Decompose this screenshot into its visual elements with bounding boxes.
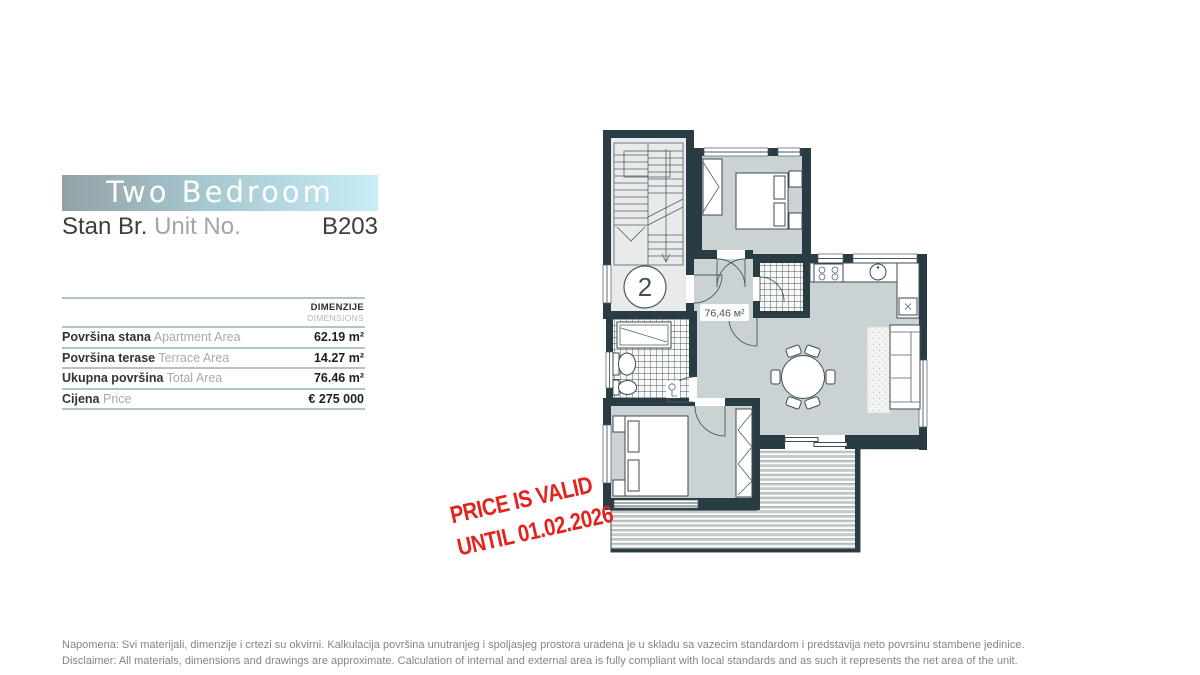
floorplan-brochure-page: Two Bedroom Stan Br. Unit No. B203 DIMEN… [0, 0, 1200, 675]
appliance [899, 298, 917, 315]
row-label-primary: Ukupna površina [62, 371, 163, 385]
row-label: Površina stana Apartment Area [62, 330, 241, 344]
table-row-terrace-area: Površina terase Terrace Area 14.27 m² [62, 349, 365, 370]
floor-number: 2 [638, 272, 652, 302]
row-label-primary: Cijena [62, 392, 100, 406]
row-label-primary: Površina terase [62, 351, 155, 365]
nightstand [613, 480, 625, 496]
disclaimer-line-1: Napomena: Svi materijali, dimenzije i cr… [62, 637, 1152, 653]
bathtub [617, 322, 671, 348]
floor-number-badge: 2 [624, 266, 666, 308]
nightstand [613, 416, 625, 432]
row-label-secondary: Terrace Area [158, 351, 229, 365]
table-row-price: Cijena Price € 275 000 [62, 390, 365, 411]
title-banner: Two Bedroom [62, 175, 378, 211]
floorplan-drawing: 2 [590, 115, 945, 570]
row-label-secondary: Price [103, 392, 131, 406]
bathroom-window [606, 352, 613, 388]
door-swing-symbol [666, 381, 680, 398]
bedroom2-window [603, 425, 611, 483]
wardrobe [736, 409, 752, 497]
terrace-edge-bottom [611, 549, 860, 553]
disclaimer-line-2: Disclaimer: All materials, dimensions an… [62, 653, 1152, 669]
unit-number: B203 [322, 213, 378, 241]
rug [867, 327, 890, 413]
page-title: Two Bedroom [106, 175, 334, 209]
stove [814, 264, 843, 282]
table-header-secondary: DIMENSIONS [62, 313, 364, 323]
dimensions-table: DIMENZIJE DIMENSIONS Površina stana Apar… [62, 297, 365, 410]
row-value: 76.46 m² [314, 371, 364, 385]
toilet [613, 380, 637, 395]
row-value: € 275 000 [308, 392, 364, 406]
dining-table [782, 356, 825, 399]
pillow [774, 203, 785, 226]
kitchen-sink [870, 264, 886, 280]
row-value: 14.27 m² [314, 351, 364, 365]
row-label-secondary: Apartment Area [154, 330, 241, 344]
disclaimer: Napomena: Svi materijali, dimenzije i cr… [62, 637, 1152, 669]
row-value: 62.19 m² [314, 330, 364, 344]
nightstand [789, 171, 802, 187]
pillow [628, 460, 639, 491]
table-row-total-area: Ukupna površina Total Area 76.46 m² [62, 369, 365, 390]
bedroom1-window [704, 148, 800, 156]
hallway-floor [686, 250, 760, 406]
shower-room-floor [753, 254, 810, 318]
terrace-edge [855, 447, 860, 552]
living-room-furniture [867, 325, 920, 413]
sofa [890, 325, 920, 409]
living-terrace-sliding-door [785, 435, 847, 449]
table-header: DIMENZIJE DIMENSIONS [62, 297, 365, 328]
kitchen-window [818, 254, 917, 263]
unit-row: Stan Br. Unit No. B203 [62, 213, 378, 241]
unit-label: Stan Br. Unit No. [62, 213, 241, 241]
row-label-secondary: Total Area [167, 371, 223, 385]
nightstand [789, 213, 802, 229]
pillow [774, 176, 785, 199]
bedroom2-terrace-door [614, 500, 698, 508]
stairwell-window [603, 265, 611, 303]
area-label: 76,46 м² [705, 308, 745, 320]
pillow [628, 421, 639, 452]
table-row-apartment-area: Površina stana Apartment Area 62.19 m² [62, 328, 365, 349]
unit-label-secondary: Unit No. [154, 213, 241, 240]
row-label-primary: Površina stana [62, 330, 151, 344]
unit-label-primary: Stan Br. [62, 213, 147, 240]
washbasin [613, 353, 636, 375]
row-label: Ukupna površina Total Area [62, 371, 222, 385]
row-label: Površina terase Terrace Area [62, 351, 229, 365]
row-label: Cijena Price [62, 392, 131, 406]
area-label-chip: 76,46 м² [700, 304, 749, 321]
table-header-primary: DIMENZIJE [62, 302, 364, 313]
